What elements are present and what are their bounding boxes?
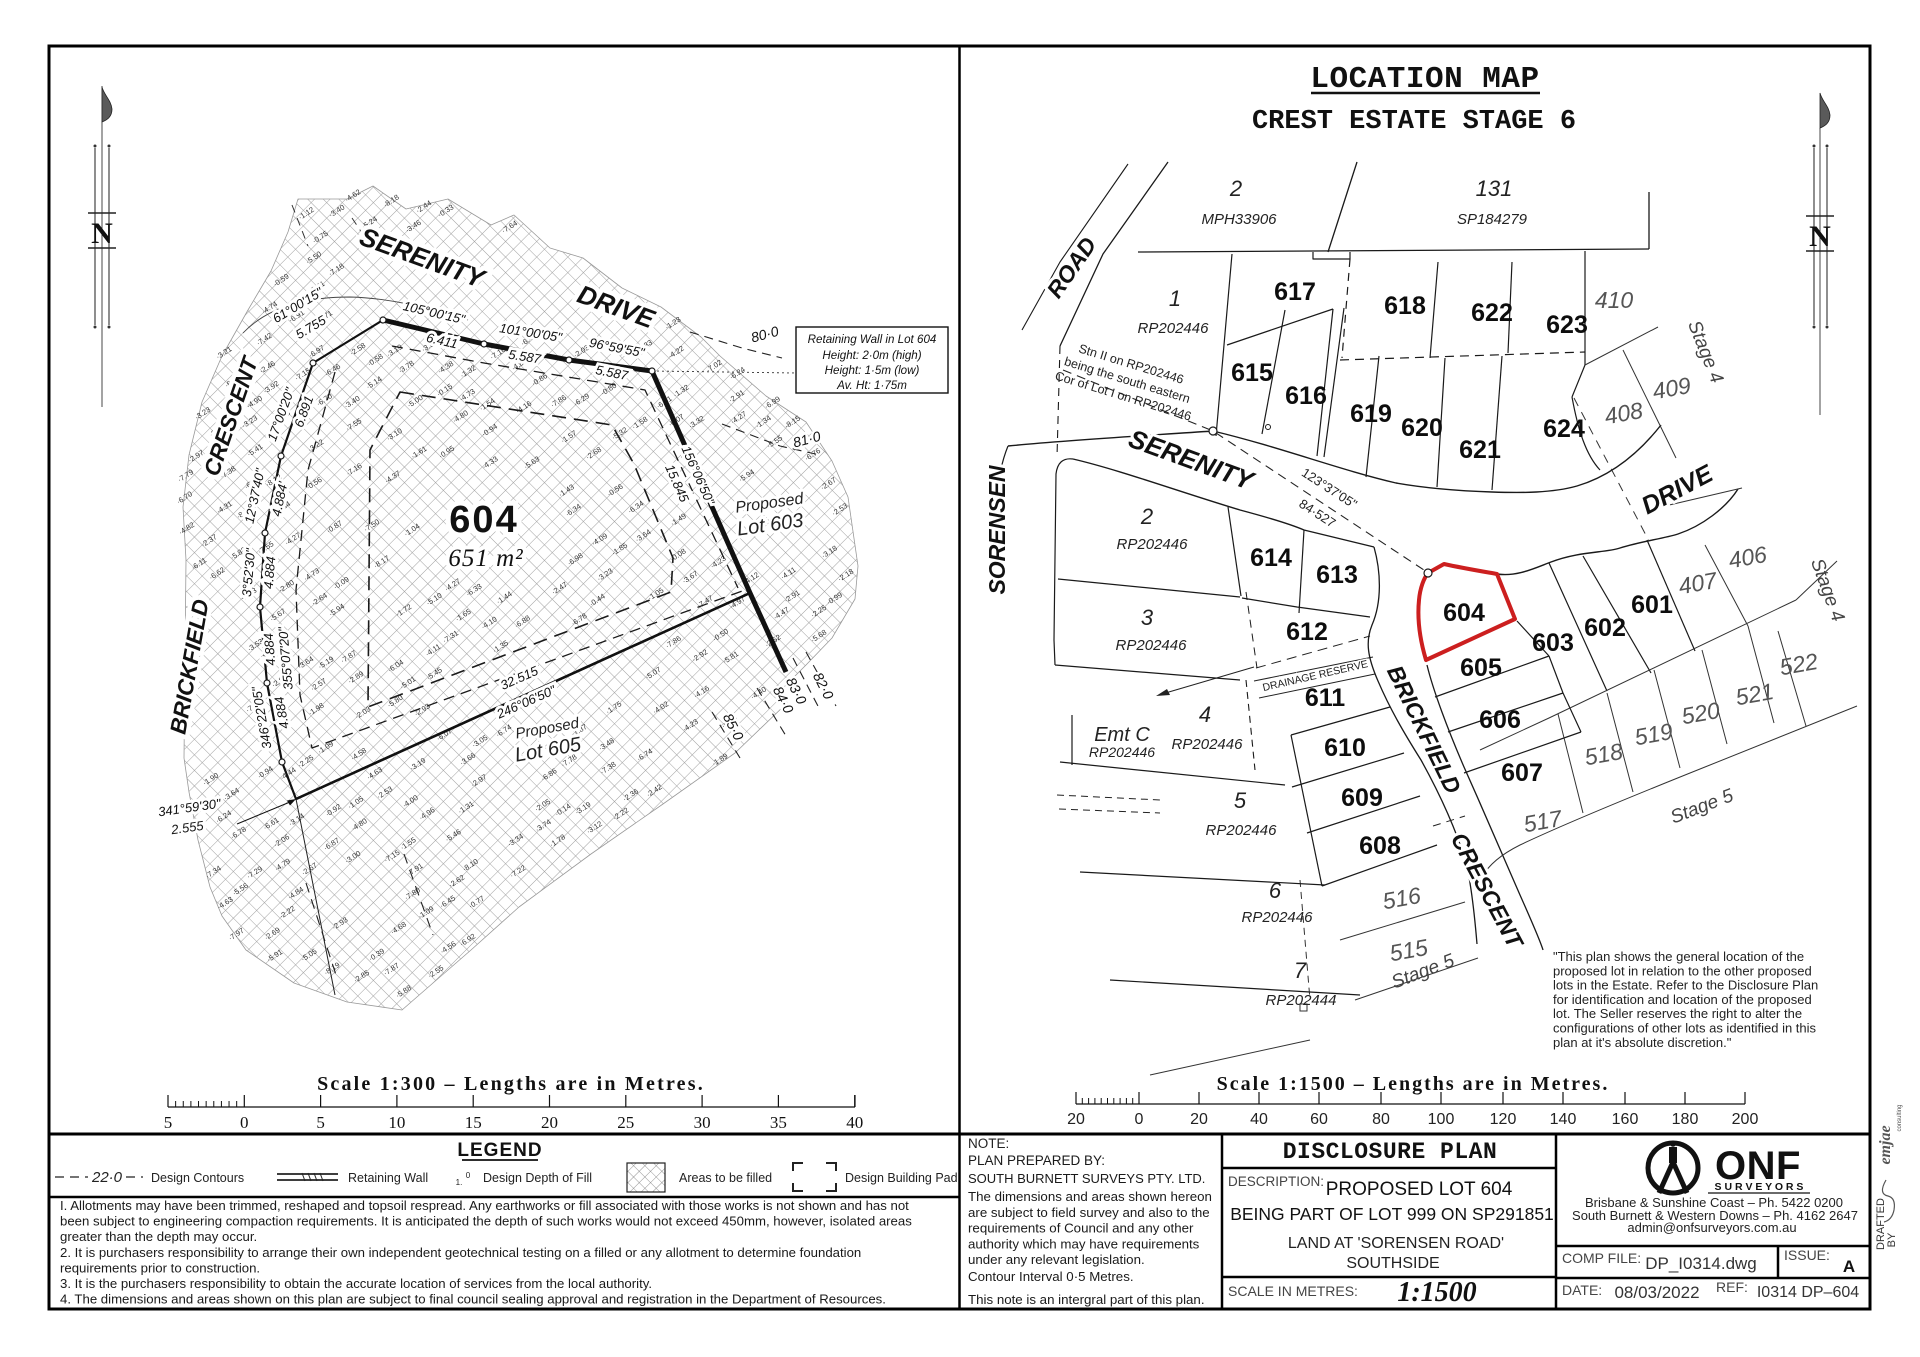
svg-text:4.884: 4.884 xyxy=(261,556,279,590)
svg-text:15: 15 xyxy=(465,1113,482,1132)
svg-text:1.: 1. xyxy=(456,1178,463,1187)
svg-text:Height: 1·5m (low): Height: 1·5m (low) xyxy=(825,364,920,377)
svg-text:2: 2 xyxy=(1229,176,1242,201)
svg-text:LAND AT 'SORENSEN ROAD': LAND AT 'SORENSEN ROAD' xyxy=(1288,1235,1504,1252)
svg-text:1: 1 xyxy=(1169,286,1181,311)
svg-text:are subject to field survey an: are subject to field survey and also to … xyxy=(968,1205,1210,1220)
svg-text:617: 617 xyxy=(1274,278,1316,306)
svg-text:DESCRIPTION:: DESCRIPTION: xyxy=(1228,1174,1324,1189)
svg-text:This note is an intergral part: This note is an intergral part of this p… xyxy=(968,1292,1205,1307)
svg-text:Areas to be filled: Areas to be filled xyxy=(679,1171,772,1185)
svg-text:Design Contours: Design Contours xyxy=(151,1171,244,1185)
svg-text:602: 602 xyxy=(1584,614,1626,642)
svg-text:22·0: 22·0 xyxy=(91,1169,123,1186)
svg-text:615: 615 xyxy=(1231,359,1273,387)
svg-text:emjae: emjae xyxy=(1877,1125,1894,1164)
svg-text:623: 623 xyxy=(1546,311,1588,339)
svg-text:607: 607 xyxy=(1501,759,1543,787)
svg-text:RP202446: RP202446 xyxy=(1172,736,1244,753)
svg-text:BY: BY xyxy=(1886,1232,1898,1247)
svg-text:7: 7 xyxy=(1294,958,1307,983)
svg-text:for identification and locatio: for identification and location of the p… xyxy=(1553,992,1812,1007)
svg-text:requirements of Council and an: requirements of Council and any other xyxy=(968,1221,1194,1236)
svg-text:1:1500: 1:1500 xyxy=(1397,1277,1476,1308)
svg-text:REF:: REF: xyxy=(1716,1279,1748,1295)
svg-text:10: 10 xyxy=(388,1113,405,1132)
svg-text:5: 5 xyxy=(316,1113,325,1132)
svg-text:4: 4 xyxy=(1199,702,1211,727)
svg-text:N: N xyxy=(91,217,113,250)
svg-text:N: N xyxy=(1809,220,1831,253)
svg-text:603: 603 xyxy=(1532,629,1574,657)
svg-text:651 m²: 651 m² xyxy=(448,545,523,572)
svg-text:lot. The Seller reserves the: lot. The Seller reserves the right to al… xyxy=(1553,1006,1802,1021)
svg-text:5: 5 xyxy=(164,1113,173,1132)
svg-text:under any relevant legislation: under any relevant legislation. xyxy=(968,1252,1145,1267)
svg-text:4.884: 4.884 xyxy=(261,633,279,667)
svg-text:PLAN PREPARED BY:: PLAN PREPARED BY: xyxy=(968,1153,1105,1168)
svg-text:proposed lot in relation to th: proposed lot in relation to the other pr… xyxy=(1553,963,1812,978)
svg-text:120: 120 xyxy=(1490,1111,1517,1128)
svg-text:greater than the depth may occ: greater than the depth may occur. xyxy=(60,1229,257,1244)
svg-text:20: 20 xyxy=(1067,1111,1085,1128)
svg-text:624: 624 xyxy=(1543,415,1585,443)
svg-text:ISSUE:: ISSUE: xyxy=(1784,1247,1830,1263)
svg-text:RP202446: RP202446 xyxy=(1089,744,1155,760)
svg-text:613: 613 xyxy=(1316,561,1358,589)
svg-text:Height: 2·0m (high): Height: 2·0m (high) xyxy=(822,349,921,362)
svg-text:6: 6 xyxy=(1269,878,1282,903)
svg-text:MPH33906: MPH33906 xyxy=(1201,211,1277,228)
svg-text:Av. Ht: 1·75m: Av. Ht: 1·75m xyxy=(836,379,907,392)
svg-text:Contour Interval 0·5 Metres.: Contour Interval 0·5 Metres. xyxy=(968,1269,1134,1284)
svg-text:I0314 DP–604: I0314 DP–604 xyxy=(1757,1284,1859,1301)
svg-text:SCALE IN METRES:: SCALE IN METRES: xyxy=(1228,1283,1358,1299)
svg-text:608: 608 xyxy=(1359,832,1401,860)
svg-text:SP184279: SP184279 xyxy=(1457,211,1528,228)
svg-text:40: 40 xyxy=(846,1113,863,1132)
svg-text:08/03/2022: 08/03/2022 xyxy=(1614,1283,1699,1302)
svg-text:3. It is the purchasers respon: 3. It is the purchasers responsibility t… xyxy=(60,1276,652,1291)
svg-text:DATE:: DATE: xyxy=(1562,1282,1602,1298)
svg-text:SORENSEN: SORENSEN xyxy=(984,465,1010,594)
svg-text:Retaining Wall in Lot 604: Retaining Wall in Lot 604 xyxy=(808,333,937,346)
svg-text:"This plan shows the general l: "This plan shows the general location of… xyxy=(1553,949,1804,964)
svg-text:A: A xyxy=(1843,1257,1855,1276)
svg-text:40: 40 xyxy=(1250,1111,1268,1128)
svg-text:SOUTHSIDE: SOUTHSIDE xyxy=(1346,1255,1439,1272)
svg-text:131: 131 xyxy=(1476,176,1513,201)
svg-text:620: 620 xyxy=(1401,414,1443,442)
svg-text:admin@onfsurveyors.com.au: admin@onfsurveyors.com.au xyxy=(1627,1220,1796,1235)
svg-text:Design Building Pad: Design Building Pad xyxy=(845,1171,958,1185)
svg-text:616: 616 xyxy=(1285,382,1327,410)
svg-text:CREST ESTATE STAGE 6: CREST ESTATE STAGE 6 xyxy=(1252,107,1576,137)
svg-text:5: 5 xyxy=(1234,788,1247,813)
svg-text:Scale 1:300 – Lengths are in M: Scale 1:300 – Lengths are in Metres. xyxy=(317,1073,705,1095)
svg-text:60: 60 xyxy=(1310,1111,1328,1128)
svg-text:621: 621 xyxy=(1459,436,1501,464)
svg-text:lots in the Estate. Refer to t: lots in the Estate. Refer to the Disclos… xyxy=(1553,978,1818,993)
svg-text:plan at it's absolute discreti: plan at it's absolute discretion." xyxy=(1553,1035,1732,1050)
svg-text:requirements prior to construc: requirements prior to construction. xyxy=(60,1260,260,1275)
svg-text:2: 2 xyxy=(1140,504,1153,529)
svg-text:20: 20 xyxy=(541,1113,558,1132)
svg-text:618: 618 xyxy=(1384,292,1426,320)
svg-text:Retaining Wall: Retaining Wall xyxy=(348,1171,428,1185)
svg-text:610: 610 xyxy=(1324,734,1366,762)
svg-text:611: 611 xyxy=(1305,684,1345,712)
svg-text:RP202446: RP202446 xyxy=(1206,822,1278,839)
svg-text:0: 0 xyxy=(1135,1111,1144,1128)
svg-text:25: 25 xyxy=(617,1113,634,1132)
svg-text:The dimensions and areas shown: The dimensions and areas shown hereon xyxy=(968,1189,1212,1204)
svg-text:200: 200 xyxy=(1732,1111,1759,1128)
svg-text:Design Depth of Fill: Design Depth of Fill xyxy=(483,1171,592,1185)
svg-text:NOTE:: NOTE: xyxy=(968,1136,1009,1151)
svg-text:601: 601 xyxy=(1631,591,1673,619)
svg-text:160: 160 xyxy=(1612,1111,1639,1128)
svg-text:I. Allotments may have been tr: I. Allotments may have been trimmed, res… xyxy=(60,1198,909,1213)
svg-text:RP202446: RP202446 xyxy=(1117,536,1189,553)
svg-text:606: 606 xyxy=(1479,706,1521,734)
svg-text:S U R V E Y O R S: S U R V E Y O R S xyxy=(1715,1181,1804,1193)
svg-text:LEGEND: LEGEND xyxy=(457,1140,542,1161)
svg-text:622: 622 xyxy=(1471,299,1513,327)
svg-text:619: 619 xyxy=(1350,400,1392,428)
svg-text:authority which may have requi: authority which may have requirements xyxy=(968,1236,1200,1251)
svg-text:consulting: consulting xyxy=(1897,1104,1903,1131)
svg-text:BEING PART OF LOT 999 ON SP291: BEING PART OF LOT 999 ON SP291851 xyxy=(1230,1204,1554,1224)
svg-text:SOUTH BURNETT SURVEYS PTY. LTD: SOUTH BURNETT SURVEYS PTY. LTD. xyxy=(968,1171,1205,1186)
svg-text:Scale 1:1500 – Lengths are in: Scale 1:1500 – Lengths are in Metres. xyxy=(1217,1073,1610,1095)
svg-text:RP202446: RP202446 xyxy=(1242,909,1314,926)
svg-text:605: 605 xyxy=(1460,654,1502,682)
svg-text:80: 80 xyxy=(1372,1111,1390,1128)
svg-text:configurations of other lots a: configurations of other lots as identifi… xyxy=(1553,1021,1817,1036)
svg-text:30: 30 xyxy=(694,1113,711,1132)
svg-text:RP202446: RP202446 xyxy=(1138,320,1210,337)
svg-text:604: 604 xyxy=(449,499,518,541)
svg-text:RP202444: RP202444 xyxy=(1266,992,1337,1009)
svg-text:604: 604 xyxy=(1443,599,1485,627)
svg-text:been subject to engineering co: been subject to engineering compaction r… xyxy=(60,1214,912,1229)
svg-text:410: 410 xyxy=(1595,287,1634,313)
svg-text:4. The dimensions and areas sh: 4. The dimensions and areas shown on thi… xyxy=(60,1292,886,1307)
svg-text:PROPOSED LOT 604: PROPOSED LOT 604 xyxy=(1326,1179,1513,1200)
svg-text:DP_I0314.dwg: DP_I0314.dwg xyxy=(1645,1254,1757,1273)
svg-text:35: 35 xyxy=(770,1113,787,1132)
svg-text:3: 3 xyxy=(1141,605,1154,630)
svg-text:100: 100 xyxy=(1428,1111,1455,1128)
svg-text:LOCATION MAP: LOCATION MAP xyxy=(1310,62,1539,97)
svg-text:COMP FILE:: COMP FILE: xyxy=(1562,1250,1641,1266)
svg-text:RP202446: RP202446 xyxy=(1116,637,1188,654)
svg-text:614: 614 xyxy=(1250,544,1292,572)
svg-text:609: 609 xyxy=(1341,784,1383,812)
svg-text:180: 180 xyxy=(1672,1111,1699,1128)
svg-text:20: 20 xyxy=(1190,1111,1208,1128)
svg-text:2. It is purchasers responsibi: 2. It is purchasers responsibility to ar… xyxy=(60,1245,861,1260)
svg-text:0: 0 xyxy=(240,1113,249,1132)
svg-text:0: 0 xyxy=(466,1171,471,1180)
svg-text:612: 612 xyxy=(1286,618,1328,646)
svg-text:Emt C: Emt C xyxy=(1094,724,1150,746)
svg-text:DISCLOSURE PLAN: DISCLOSURE PLAN xyxy=(1283,1139,1498,1165)
svg-text:140: 140 xyxy=(1550,1111,1577,1128)
